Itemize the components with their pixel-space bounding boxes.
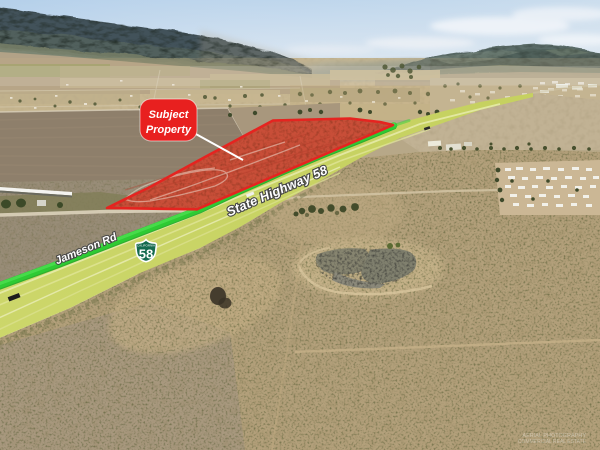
svg-text:Subject: Subject [149,109,190,121]
svg-text:Property: Property [146,124,192,136]
svg-text:58: 58 [139,247,153,262]
svg-text:COMMERCIAL REAL ESTATE: COMMERCIAL REAL ESTATE [518,439,587,445]
